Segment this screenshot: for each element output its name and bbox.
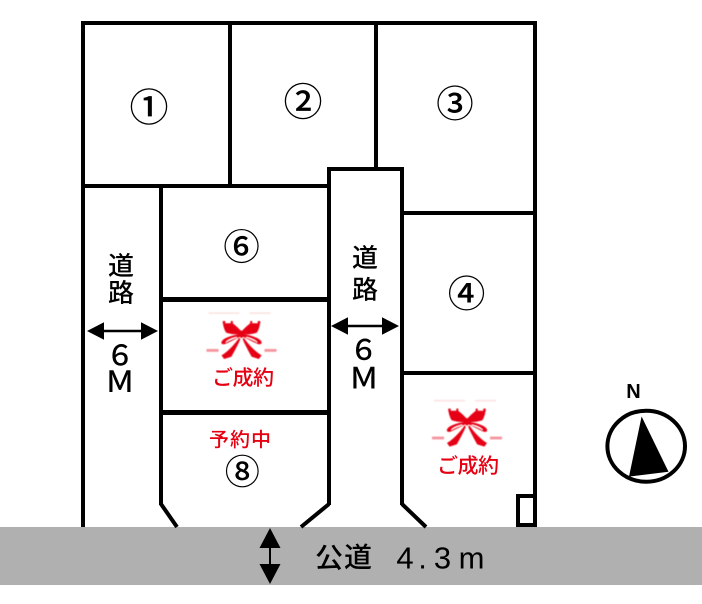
svg-text:N: N — [626, 381, 640, 403]
svg-text:3: 3 — [434, 541, 451, 576]
svg-text:4: 4 — [396, 541, 413, 576]
svg-text:m: m — [459, 541, 485, 576]
svg-text:.: . — [418, 541, 427, 576]
